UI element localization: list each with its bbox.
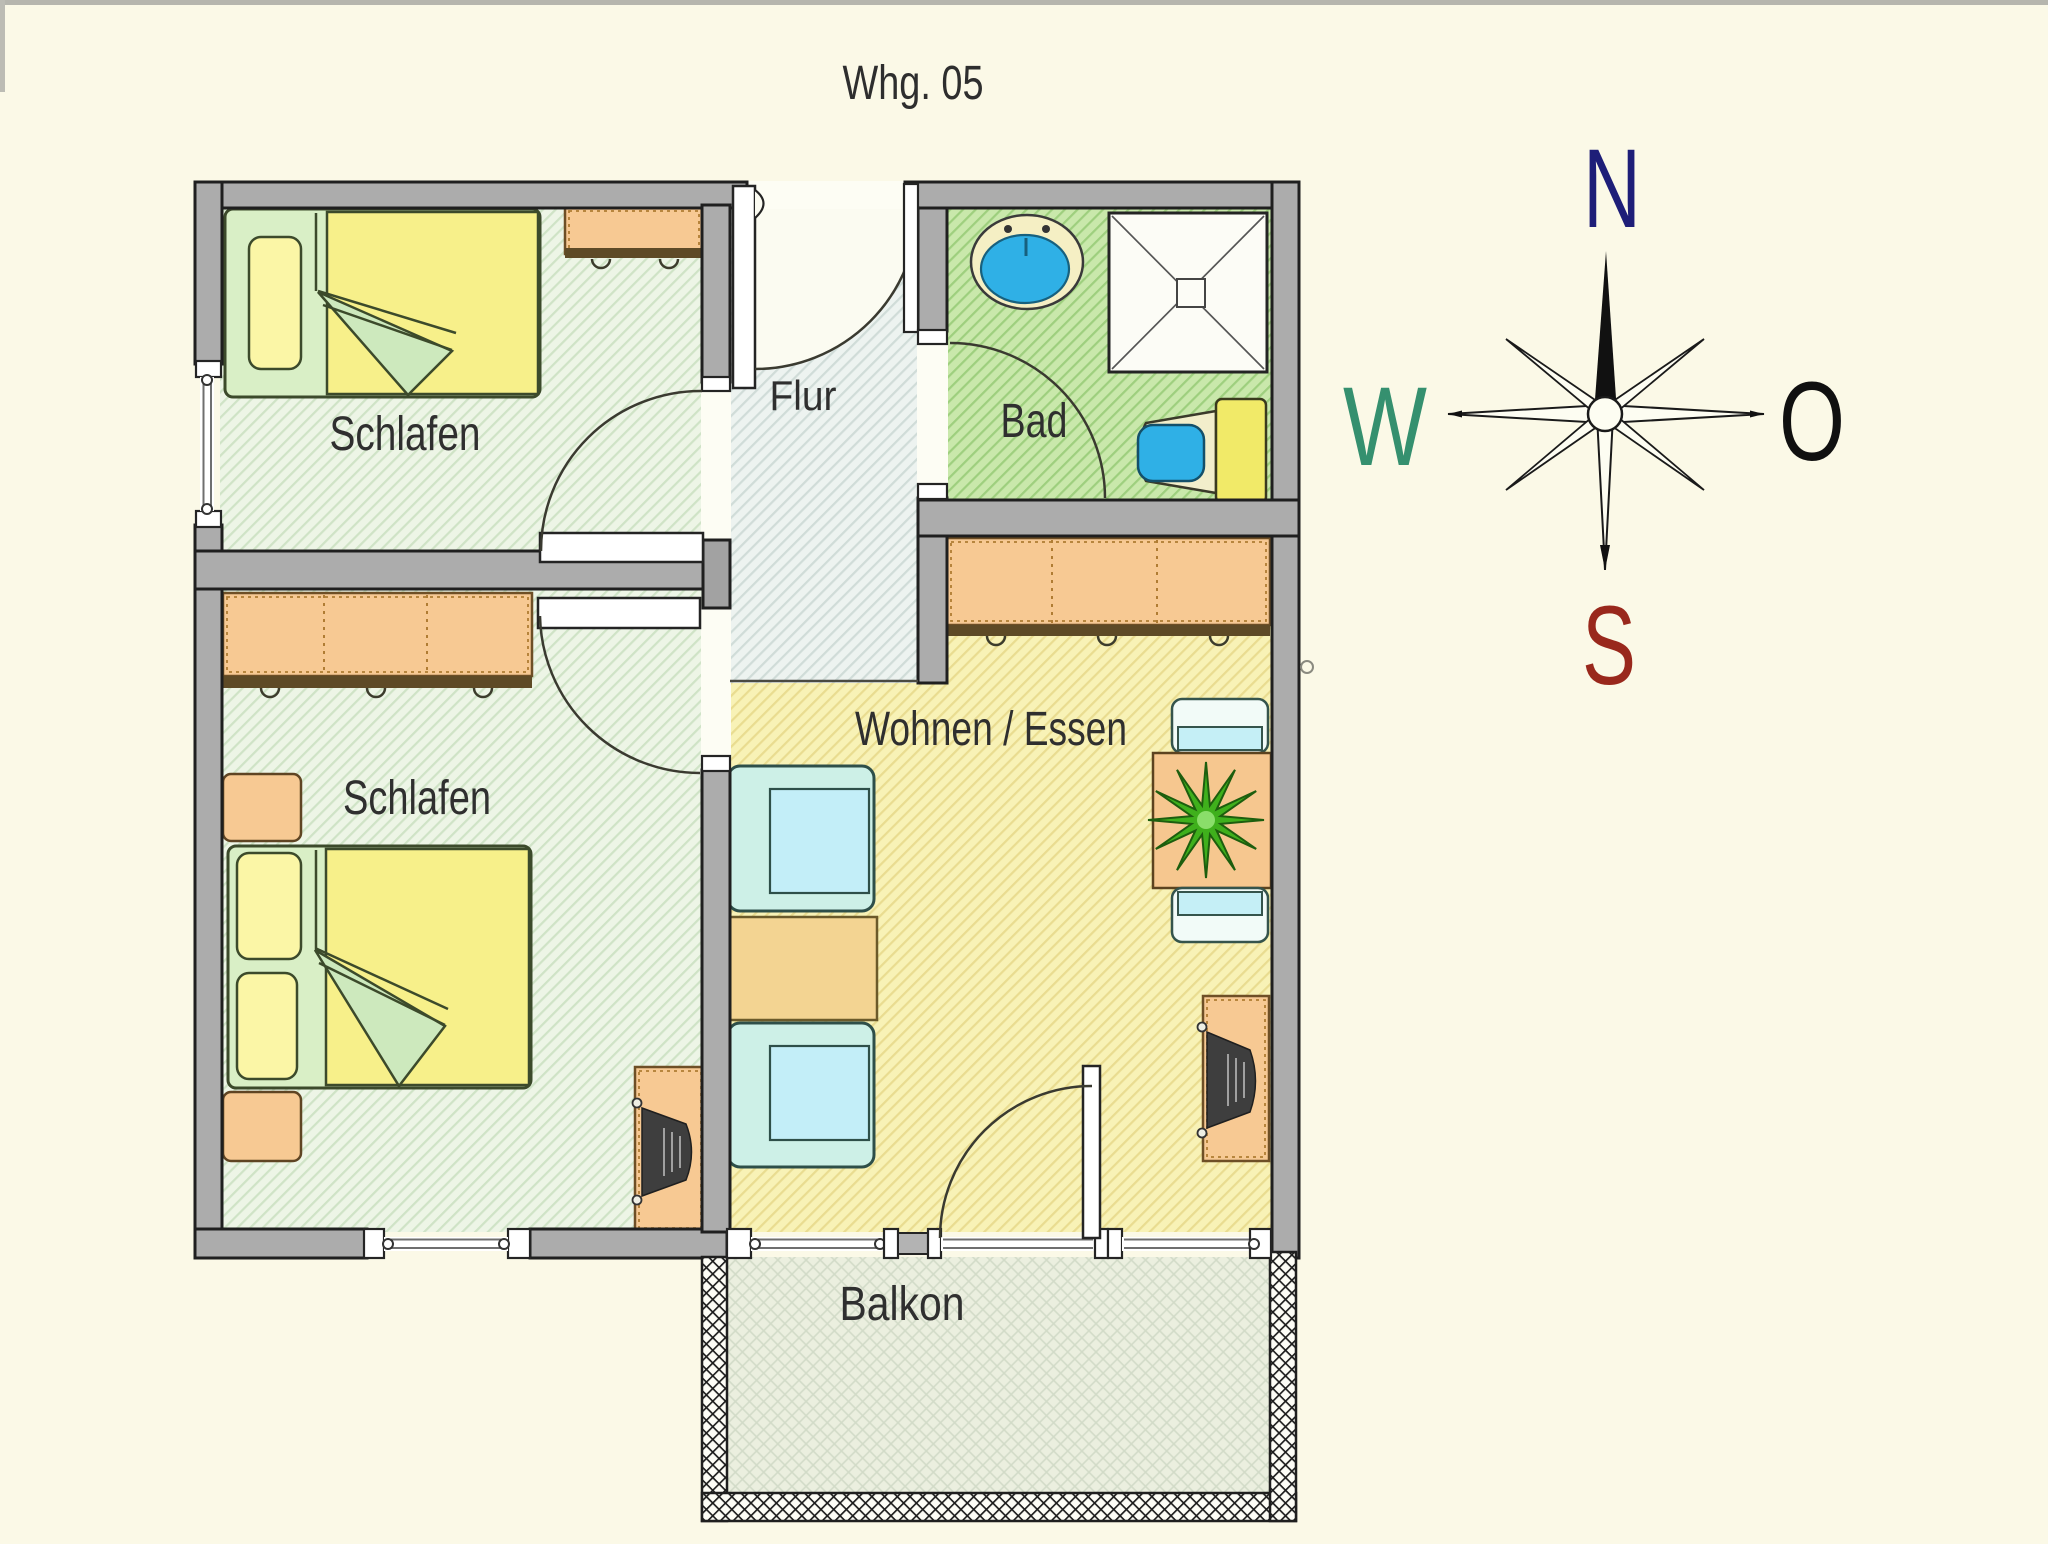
- svg-text:W: W: [1343, 364, 1427, 489]
- svg-text:Bad: Bad: [1001, 395, 1068, 448]
- svg-text:Schlafen: Schlafen: [343, 772, 491, 825]
- svg-text:O: O: [1779, 359, 1845, 484]
- svg-text:S: S: [1582, 583, 1636, 708]
- svg-text:Balkon: Balkon: [840, 1278, 965, 1331]
- svg-text:N: N: [1583, 126, 1641, 251]
- svg-text:Wohnen / Essen: Wohnen / Essen: [855, 703, 1127, 756]
- svg-text:Schlafen: Schlafen: [330, 408, 481, 461]
- svg-text:Whg. 05: Whg. 05: [843, 57, 984, 110]
- svg-text:Flur: Flur: [770, 372, 837, 419]
